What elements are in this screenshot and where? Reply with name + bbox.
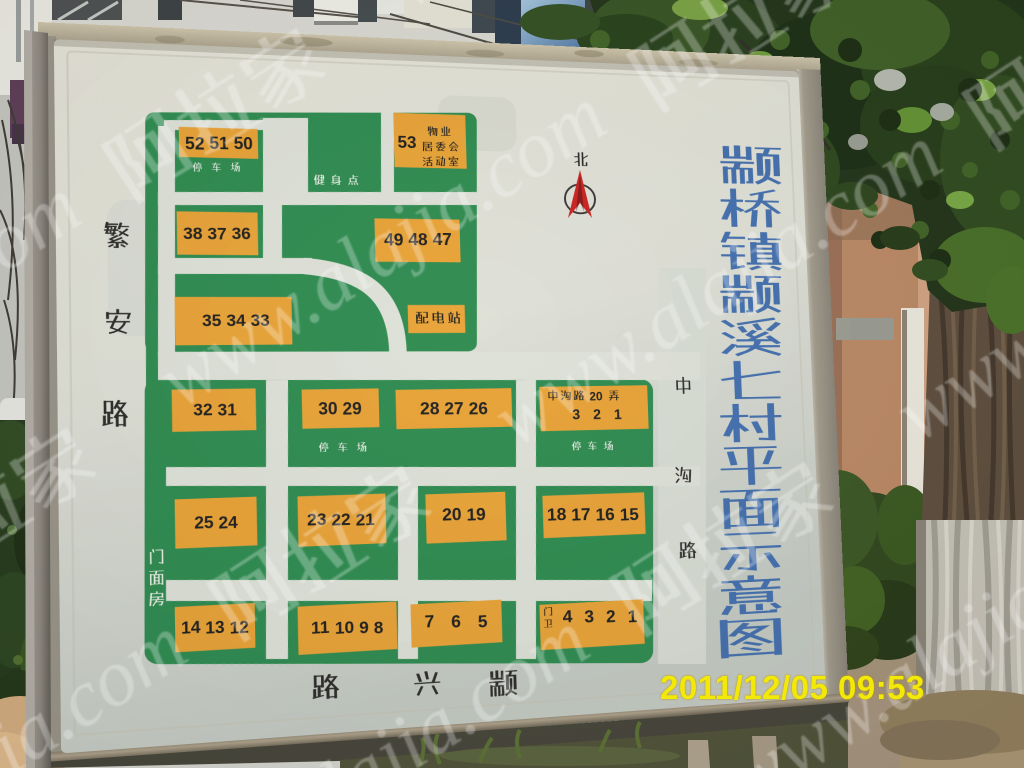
- svg-text:www.alajia.com: www.alajia.com: [712, 470, 1024, 768]
- svg-text:www.alajia.com: www.alajia.com: [372, 0, 851, 25]
- svg-text:www.alajia.com: www.alajia.com: [125, 595, 604, 768]
- svg-text:www.alajia.com: www.alajia.com: [0, 600, 202, 768]
